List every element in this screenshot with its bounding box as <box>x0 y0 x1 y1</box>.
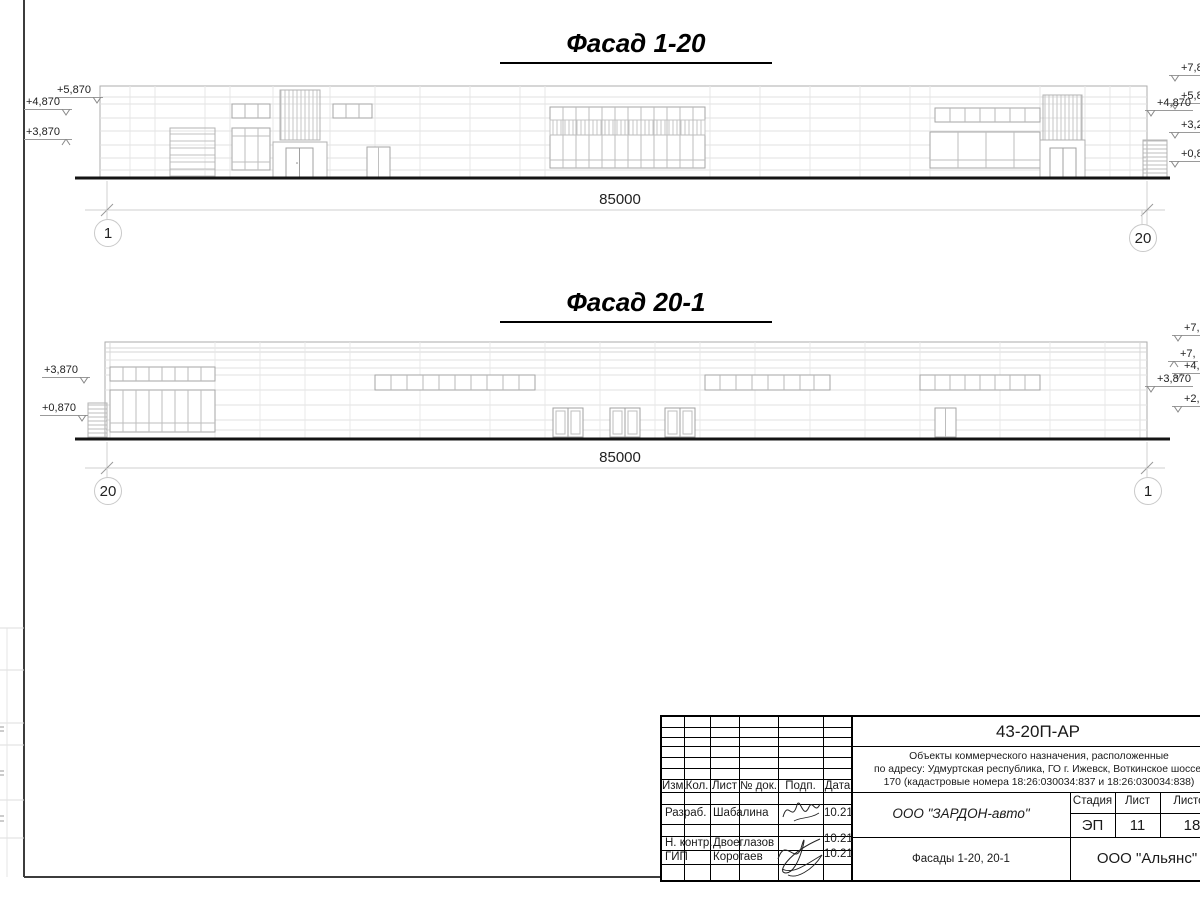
axis-bubble-20: 20 <box>94 477 122 505</box>
tb-date: 10.21 <box>824 848 853 860</box>
tb-line <box>662 824 852 825</box>
tb-role: Н. контр. <box>665 837 712 849</box>
tb-sheets-value: 18 <box>1160 817 1200 834</box>
tb-role: ГИП <box>665 851 688 863</box>
tb-line <box>662 737 852 738</box>
dimension-value: 85000 <box>560 449 680 466</box>
glazed-section-left <box>110 367 215 432</box>
tb-organization: ООО "Альянс" <box>1070 850 1200 867</box>
axis-bubble-20: 20 <box>1129 224 1157 252</box>
tb-col-doc: № док. <box>739 780 778 792</box>
level-arrow-icon <box>1170 75 1180 82</box>
level-arrow-icon <box>61 139 71 146</box>
tb-project-desc-line3: 170 (кадастровые номера 18:26:030034:837… <box>854 776 1200 789</box>
tb-line <box>662 804 852 805</box>
level-arrow-icon <box>1173 406 1183 413</box>
level-arrow-icon <box>61 109 71 116</box>
tb-col-data: Дата <box>823 780 852 792</box>
level-arrow-icon <box>1170 132 1180 139</box>
level-mark: +4,870 <box>24 96 72 110</box>
level-mark: +3,870 <box>24 126 72 140</box>
level-mark: +7,87 <box>1169 62 1200 76</box>
adjacent-sheet-fragment <box>0 628 24 877</box>
curtain-wall-center <box>550 107 705 168</box>
tb-date: 10.21 <box>824 833 853 845</box>
tb-sheet-value: 11 <box>1115 817 1160 834</box>
tb-client: ООО "ЗАРДОН-авто" <box>852 806 1070 821</box>
tb-sheets-label: Листов <box>1160 795 1200 807</box>
level-mark: +0,87 <box>1169 148 1200 162</box>
tb-line <box>662 757 852 758</box>
facade-20-1-title: Фасад 20-1 <box>500 287 772 323</box>
slat-stack <box>88 403 107 438</box>
tb-sheet-title: Фасады 1-20, 20-1 <box>852 853 1070 865</box>
signature-shabalina <box>780 795 822 825</box>
level-mark: +7,8 <box>1172 322 1200 336</box>
level-mark: +4,8 <box>1172 360 1200 374</box>
tb-date: 10.21 <box>824 807 853 819</box>
tb-line <box>662 792 1200 793</box>
tb-line <box>662 746 1200 747</box>
slat-stack <box>1143 140 1167 177</box>
tb-doc-number: 43-20П-АР <box>852 722 1200 742</box>
level-arrow-icon <box>1170 161 1180 168</box>
level-arrow-icon <box>77 415 87 422</box>
tb-col-podp: Подп. <box>778 780 823 792</box>
level-mark: +3,27 <box>1169 119 1200 133</box>
tb-project-desc-line1: Объекты коммерческого назначения, распол… <box>854 750 1200 763</box>
drawing-sheet: { "facade1": { "title": "Фасад 1-20", "d… <box>0 0 1200 900</box>
tb-sheet-label: Лист <box>1115 795 1160 807</box>
tb-line <box>852 837 1200 838</box>
tb-name: Двоеглазов <box>713 837 774 849</box>
tb-col-list: Лист <box>710 780 739 792</box>
axis-bubble-1: 1 <box>94 219 122 247</box>
level-mark: +4,870 <box>1145 97 1193 111</box>
facade-1-20-title: Фасад 1-20 <box>500 28 772 64</box>
level-arrow-icon <box>92 97 102 104</box>
louver-panel <box>280 90 320 140</box>
axis-bubble-1: 1 <box>1134 477 1162 505</box>
tb-col-izm: Изм. <box>662 780 684 792</box>
level-arrow-icon <box>1146 386 1156 393</box>
level-mark: +2,1 <box>1172 393 1200 407</box>
level-arrow-icon <box>1173 335 1183 342</box>
tb-stage-label: Стадия <box>1070 795 1115 807</box>
tb-role: Разраб. <box>665 807 706 819</box>
signature-gip <box>772 829 826 879</box>
level-mark: +0,870 <box>40 402 88 416</box>
dimension-value: 85000 <box>560 191 680 208</box>
level-arrow-icon <box>1146 110 1156 117</box>
entrance-doors <box>553 408 695 437</box>
tb-col-kol: Кол. <box>684 780 710 792</box>
tb-line <box>710 717 711 880</box>
level-mark: +3,870 <box>1145 373 1193 387</box>
tb-line <box>662 768 852 769</box>
tb-name: Шабалина <box>713 807 769 819</box>
tb-line <box>1070 813 1200 814</box>
level-arrow-icon <box>79 377 89 384</box>
gate-rollup <box>170 128 215 177</box>
tb-stage-value: ЭП <box>1070 817 1115 834</box>
tb-line <box>662 727 852 728</box>
title-block: Изм. Кол. Лист № док. Подп. Дата Разраб.… <box>660 715 1200 882</box>
tb-name: Коротаев <box>713 851 763 863</box>
level-mark: +3,870 <box>42 364 90 378</box>
tb-project-desc-line2: по адресу: Удмуртская республика, ГО г. … <box>854 763 1200 776</box>
